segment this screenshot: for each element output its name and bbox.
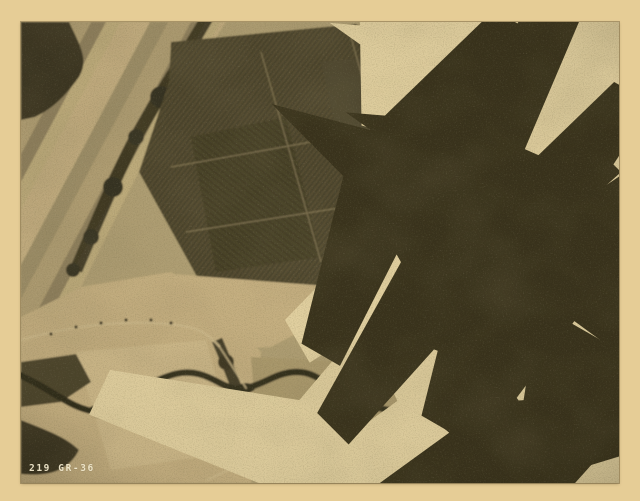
photo-vignette	[21, 22, 619, 483]
aerial-photograph: 219 GR-36	[21, 22, 619, 483]
photo-mount-paper: 219 GR-36	[0, 0, 640, 501]
aerial-photograph-image	[21, 22, 619, 483]
photo-id-caption: 219 GR-36	[29, 463, 95, 474]
